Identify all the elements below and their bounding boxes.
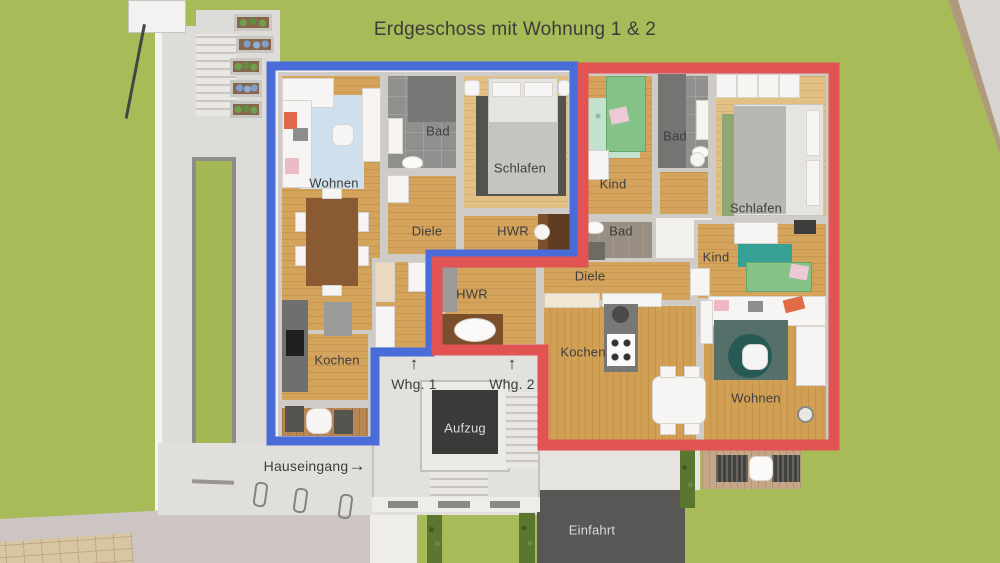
pillow bbox=[714, 300, 729, 311]
entrance-label: Hauseingang bbox=[264, 458, 349, 474]
toilet bbox=[585, 221, 604, 234]
shower bbox=[583, 242, 605, 260]
right-arrow-icon: → bbox=[349, 456, 366, 476]
wardrobe bbox=[794, 220, 816, 234]
cooktop bbox=[607, 334, 635, 366]
room-label-diele-1: Diele bbox=[412, 224, 443, 239]
pillow bbox=[284, 112, 297, 129]
pillow bbox=[285, 158, 299, 174]
stairs bbox=[506, 392, 538, 468]
cabinet bbox=[375, 306, 395, 348]
shower bbox=[408, 76, 456, 122]
driveway-label: Einfahrt bbox=[569, 523, 615, 538]
room-label-bad-1: Bad bbox=[426, 124, 450, 139]
desk bbox=[548, 214, 570, 250]
planter-box bbox=[236, 36, 274, 53]
hedge bbox=[519, 513, 535, 563]
pillow bbox=[748, 301, 763, 312]
window-slot bbox=[490, 501, 520, 508]
lounger bbox=[772, 455, 800, 482]
cabinet bbox=[408, 262, 426, 292]
hedge bbox=[680, 450, 695, 508]
kitchen-island bbox=[324, 302, 352, 336]
pillow bbox=[492, 82, 521, 97]
room-label-bad-2b: Bad bbox=[609, 224, 633, 239]
whg1-label: Whg. 1 bbox=[391, 376, 437, 392]
extractor-hood bbox=[612, 306, 629, 323]
desk-chair bbox=[534, 224, 550, 240]
kitchen-cabinets bbox=[544, 293, 600, 308]
pouf bbox=[742, 344, 768, 370]
chair bbox=[358, 246, 369, 266]
kids-desk bbox=[734, 222, 778, 244]
pillow bbox=[789, 264, 809, 281]
elevator-label: Aufzug bbox=[444, 421, 486, 436]
whg2-label: Whg. 2 bbox=[489, 376, 535, 392]
hedge bbox=[427, 515, 442, 563]
room-label-kind-2b: Kind bbox=[703, 250, 730, 265]
room-label-bad-2a: Bad bbox=[663, 129, 687, 144]
nook-chair bbox=[285, 406, 304, 432]
chair bbox=[295, 246, 306, 266]
sideboard bbox=[362, 88, 381, 162]
page-title: Erdgeschoss mit Wohnung 1 & 2 bbox=[374, 19, 656, 41]
room-label-diele-2: Diele bbox=[575, 269, 606, 284]
pillow bbox=[293, 128, 308, 141]
toilet bbox=[402, 156, 423, 169]
window-slot bbox=[438, 501, 470, 508]
room-label-wohnen-2: Wohnen bbox=[731, 391, 780, 406]
blanket bbox=[488, 122, 558, 194]
chair bbox=[358, 212, 369, 232]
tall-cabinet bbox=[441, 266, 457, 312]
sofa bbox=[796, 326, 826, 386]
chair bbox=[660, 423, 676, 435]
room-label-kochen-2: Kochen bbox=[560, 345, 605, 360]
nook-chair bbox=[334, 410, 353, 434]
up-arrow-icon: ↑ bbox=[508, 354, 517, 374]
wall-strip bbox=[370, 515, 417, 563]
planter-box bbox=[230, 80, 262, 97]
window-slot bbox=[388, 501, 418, 508]
console-table bbox=[700, 300, 713, 344]
nightstand bbox=[464, 80, 480, 96]
planter-box bbox=[230, 58, 262, 75]
dresser bbox=[583, 150, 609, 180]
cabinet bbox=[375, 262, 395, 302]
room-label-hwr-2: HWR bbox=[456, 287, 488, 302]
patio-table bbox=[749, 456, 773, 481]
up-arrow-icon: ↑ bbox=[410, 354, 419, 374]
room-label-wohnen-1: Wohnen bbox=[309, 176, 358, 191]
room-label-kind-2a: Kind bbox=[600, 177, 627, 192]
shower bbox=[658, 74, 686, 168]
chair bbox=[660, 366, 676, 378]
floorplan-canvas: Erdgeschoss mit Wohnung 1 & 2 Wohnen Bad… bbox=[0, 0, 1000, 563]
planter-box bbox=[230, 101, 262, 118]
lounger bbox=[716, 455, 748, 482]
blanket bbox=[734, 106, 786, 214]
pillow bbox=[524, 82, 553, 97]
room-label-schlafen-2: Schlafen bbox=[730, 201, 782, 216]
planter-box bbox=[234, 14, 272, 31]
dining-table bbox=[652, 376, 706, 424]
curb bbox=[155, 26, 162, 515]
nightstand bbox=[558, 80, 570, 96]
room-label-hwr-1: HWR bbox=[497, 224, 529, 239]
dining-table bbox=[306, 198, 358, 286]
closet bbox=[387, 175, 409, 203]
pet-bed bbox=[454, 318, 496, 342]
room-label-kochen-1: Kochen bbox=[314, 353, 359, 368]
shelf bbox=[690, 268, 710, 296]
nightstand bbox=[690, 152, 705, 167]
pillow bbox=[806, 110, 820, 156]
floor-vent bbox=[797, 406, 814, 423]
cooktop bbox=[286, 330, 304, 356]
chair bbox=[684, 366, 700, 378]
nook-table bbox=[306, 408, 332, 434]
room-label-schlafen-1: Schlafen bbox=[494, 161, 546, 176]
chair bbox=[684, 423, 700, 435]
chair bbox=[295, 212, 306, 232]
driveway-apron bbox=[540, 443, 700, 490]
garage-roof bbox=[128, 0, 186, 33]
room-hall-2 bbox=[656, 172, 712, 218]
sink bbox=[388, 118, 403, 154]
pillow bbox=[806, 160, 820, 206]
pouf bbox=[332, 124, 354, 146]
green-bed bbox=[192, 157, 236, 447]
vanity bbox=[696, 100, 709, 140]
closet-row bbox=[716, 74, 800, 98]
chair bbox=[322, 285, 342, 296]
